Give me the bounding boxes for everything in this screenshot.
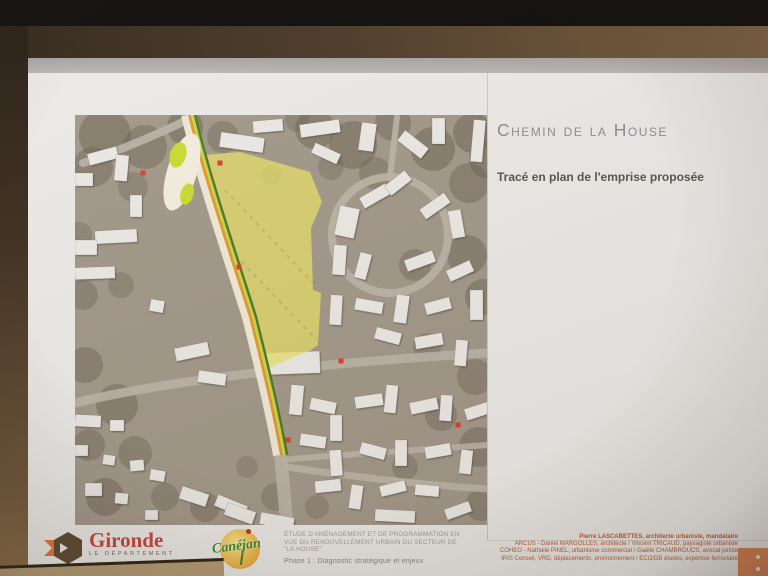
panel-divider xyxy=(487,73,488,540)
map-image xyxy=(75,115,487,525)
credit-line: IRIS Conseil, VRD, déplacements, environ… xyxy=(468,556,738,563)
study-line: "LA HOUSE" xyxy=(284,546,499,554)
study-line: ÉTUDE D'AMÉNAGEMENT ET DE PROGRAMMATION … xyxy=(284,531,499,539)
photo-backdrop: Chemin de la House Tracé en plan de l'em… xyxy=(0,0,768,576)
credits-block: Pierre LASCABETTES, architecte urbaniste… xyxy=(468,534,738,563)
corner-accent-block xyxy=(738,548,768,576)
page-title: Chemin de la House xyxy=(497,120,668,141)
gironde-logo-dept: LE DÉPARTEMENT xyxy=(89,552,175,558)
study-title-block: ÉTUDE D'AMÉNAGEMENT ET DE PROGRAMMATION … xyxy=(284,531,499,565)
corner-dot xyxy=(756,555,760,559)
corner-dot xyxy=(756,567,760,571)
left-wall-edge xyxy=(0,26,28,576)
phase-line: Phase 1 : Diagnostic stratégique et enje… xyxy=(284,558,499,566)
page-subtitle: Tracé en plan de l'emprise proposée xyxy=(497,170,704,184)
slide-top-bar xyxy=(28,58,768,73)
aerial-map-svg xyxy=(75,115,487,525)
credit-line: Pierre LASCABETTES, architecte urbaniste… xyxy=(468,534,738,541)
credit-line: ARCUS - Daniel MARGOLLES, architecte / V… xyxy=(468,541,738,548)
study-line: VUE DU RENOUVELLEMENT URBAIN DU SECTEUR … xyxy=(284,539,499,547)
slide: Chemin de la House Tracé en plan de l'em… xyxy=(28,58,768,576)
canejan-cherry-icon xyxy=(246,529,251,534)
gironde-logo-icon xyxy=(44,530,84,566)
credit-line: COHEO - Nathalie PINEL, urbanisme commer… xyxy=(468,548,738,555)
wall-band xyxy=(0,26,768,58)
gironde-logo-name: Gironde xyxy=(89,530,175,551)
